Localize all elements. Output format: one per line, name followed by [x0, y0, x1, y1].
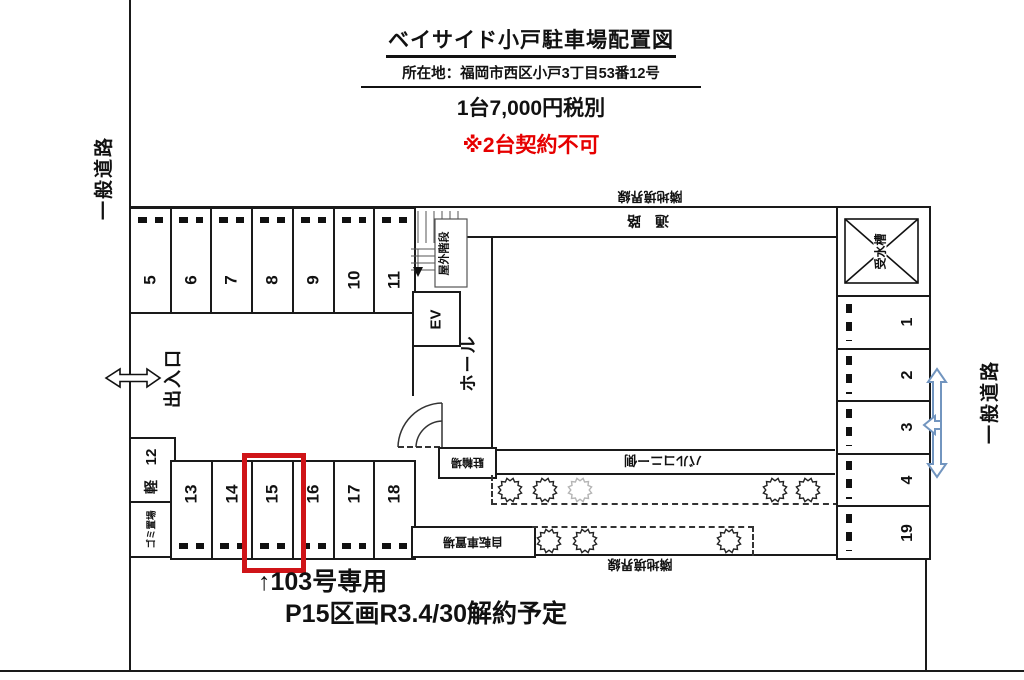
right-road-label: 一般道路	[977, 342, 999, 462]
elevator-label: EV	[428, 309, 445, 329]
balcony-side-label: バルコニー側	[608, 453, 718, 471]
left-road-line	[129, 0, 131, 672]
space-number: 14	[222, 475, 242, 514]
parking-space-8: 8	[253, 209, 294, 312]
boundary-line-bottom-label: 隣地境界線	[575, 558, 705, 574]
bush-icon	[536, 528, 562, 554]
parking-space-18: 18	[375, 462, 414, 558]
parking-space-17: 17	[335, 462, 376, 558]
space-line-marks	[846, 514, 852, 551]
space-number: 7	[222, 261, 242, 300]
corridor-bottom-line	[455, 236, 836, 238]
price-text: 1台7,000円税別	[361, 92, 701, 122]
parking-space-4: 4	[838, 455, 929, 508]
bush-icon	[572, 528, 598, 554]
space-line-marks	[301, 217, 326, 223]
space-number: 8	[263, 261, 283, 300]
right-parking-column: 1 2 3 4 19	[836, 295, 931, 560]
top-parking-row: 5 6 7 8 9 10 11	[129, 207, 416, 314]
space-number: 11	[385, 261, 405, 300]
bicycle-storage-label: 自転車置場	[443, 534, 503, 551]
hall-label: ホール	[456, 325, 476, 401]
space-number: 3	[899, 415, 919, 439]
bush-icon	[532, 477, 558, 503]
bush-icon	[716, 528, 742, 554]
garbage-area-label: ゴミ置場	[145, 509, 156, 551]
parking-space-10: 10	[335, 209, 376, 312]
space-number: 6	[181, 261, 201, 300]
space-line-marks	[342, 217, 367, 223]
space-line-marks	[846, 409, 852, 446]
space-line-marks	[179, 217, 204, 223]
bush-icon	[795, 477, 821, 503]
corridor-label: 通 路	[593, 212, 703, 230]
space-line-marks	[220, 543, 245, 549]
space-number: 4	[899, 468, 919, 492]
space-number: 19	[899, 521, 919, 545]
space-line-marks	[260, 217, 285, 223]
space-line-marks	[382, 217, 407, 223]
space-line-marks	[138, 217, 163, 223]
bike-rack-label: 駐輪場	[451, 455, 484, 471]
highlight-box-space-15	[242, 453, 306, 573]
space-number: 5	[140, 261, 160, 300]
bike-rack-box: 駐輪場	[438, 447, 497, 479]
space-line-marks	[179, 543, 204, 549]
caption-line-2: P15区画R3.4/30解約予定	[258, 598, 567, 630]
bush-icon	[762, 477, 788, 503]
bottom-page-line	[0, 670, 1024, 672]
hall-dashed-line	[398, 446, 440, 448]
outdoor-stairs-label: 屋外階段	[437, 228, 450, 280]
balcony-top-line	[491, 449, 835, 451]
parking-space-19: 19	[838, 507, 929, 558]
space-number: 9	[303, 261, 323, 300]
bush-icon	[567, 477, 593, 503]
space-line-marks	[846, 304, 852, 341]
caption-line-1: ↑103号専用	[258, 566, 567, 598]
space-number: 2	[899, 363, 919, 387]
parking-space-7: 7	[212, 209, 253, 312]
space-number: 16	[303, 475, 323, 514]
kei-label: 軽	[143, 478, 159, 496]
space-line-marks	[846, 461, 852, 498]
space-line-marks	[382, 543, 407, 549]
space-line-marks	[342, 543, 367, 549]
hall-left-wall	[412, 341, 414, 396]
parking-space-5: 5	[131, 209, 172, 312]
left-road-label: 一般道路	[91, 118, 113, 238]
entrance-arrow-icon	[104, 365, 162, 391]
parking-space-13: 13	[172, 462, 213, 558]
space-line-marks	[219, 217, 244, 223]
entrance-label: 出入口	[161, 336, 183, 420]
road-direction-arrow-icon	[922, 367, 956, 479]
space-number: 1	[899, 310, 919, 334]
caption-block: ↑103号専用 P15区画R3.4/30解約予定	[258, 566, 567, 630]
title-block: ベイサイド小戸駐車場配置図 所在地：福岡市西区小戸3丁目53番12号	[361, 24, 701, 88]
water-tank-label: 受水槽	[874, 230, 887, 274]
space-number: 17	[344, 475, 364, 514]
hall-right-wall	[491, 236, 493, 476]
bicycle-storage-box: 自転車置場	[411, 526, 536, 558]
door-swing-icon	[396, 392, 446, 450]
parking-space-2: 2	[838, 350, 929, 403]
parking-space-6: 6	[172, 209, 213, 312]
space-number: 13	[181, 475, 201, 514]
parking-space-3: 3	[838, 402, 929, 455]
bush-icon	[497, 477, 523, 503]
space-number-12: 12	[143, 444, 159, 470]
price-block: 1台7,000円税別 ※2台契約不可	[361, 92, 701, 159]
warning-text: ※2台契約不可	[361, 129, 701, 159]
page-title: ベイサイド小戸駐車場配置図	[386, 24, 676, 58]
space-line-marks	[846, 356, 852, 393]
space-number: 18	[385, 475, 405, 514]
space-number: 10	[344, 261, 364, 300]
parking-layout-map: ベイサイド小戸駐車場配置図 所在地：福岡市西区小戸3丁目53番12号 1台7,0…	[0, 0, 1024, 680]
boundary-line-top-label: 隣地境界線	[585, 190, 715, 205]
parking-space-1: 1	[838, 297, 929, 350]
parking-space-9: 9	[294, 209, 335, 312]
address-line: 所在地：福岡市西区小戸3丁目53番12号	[361, 62, 701, 83]
